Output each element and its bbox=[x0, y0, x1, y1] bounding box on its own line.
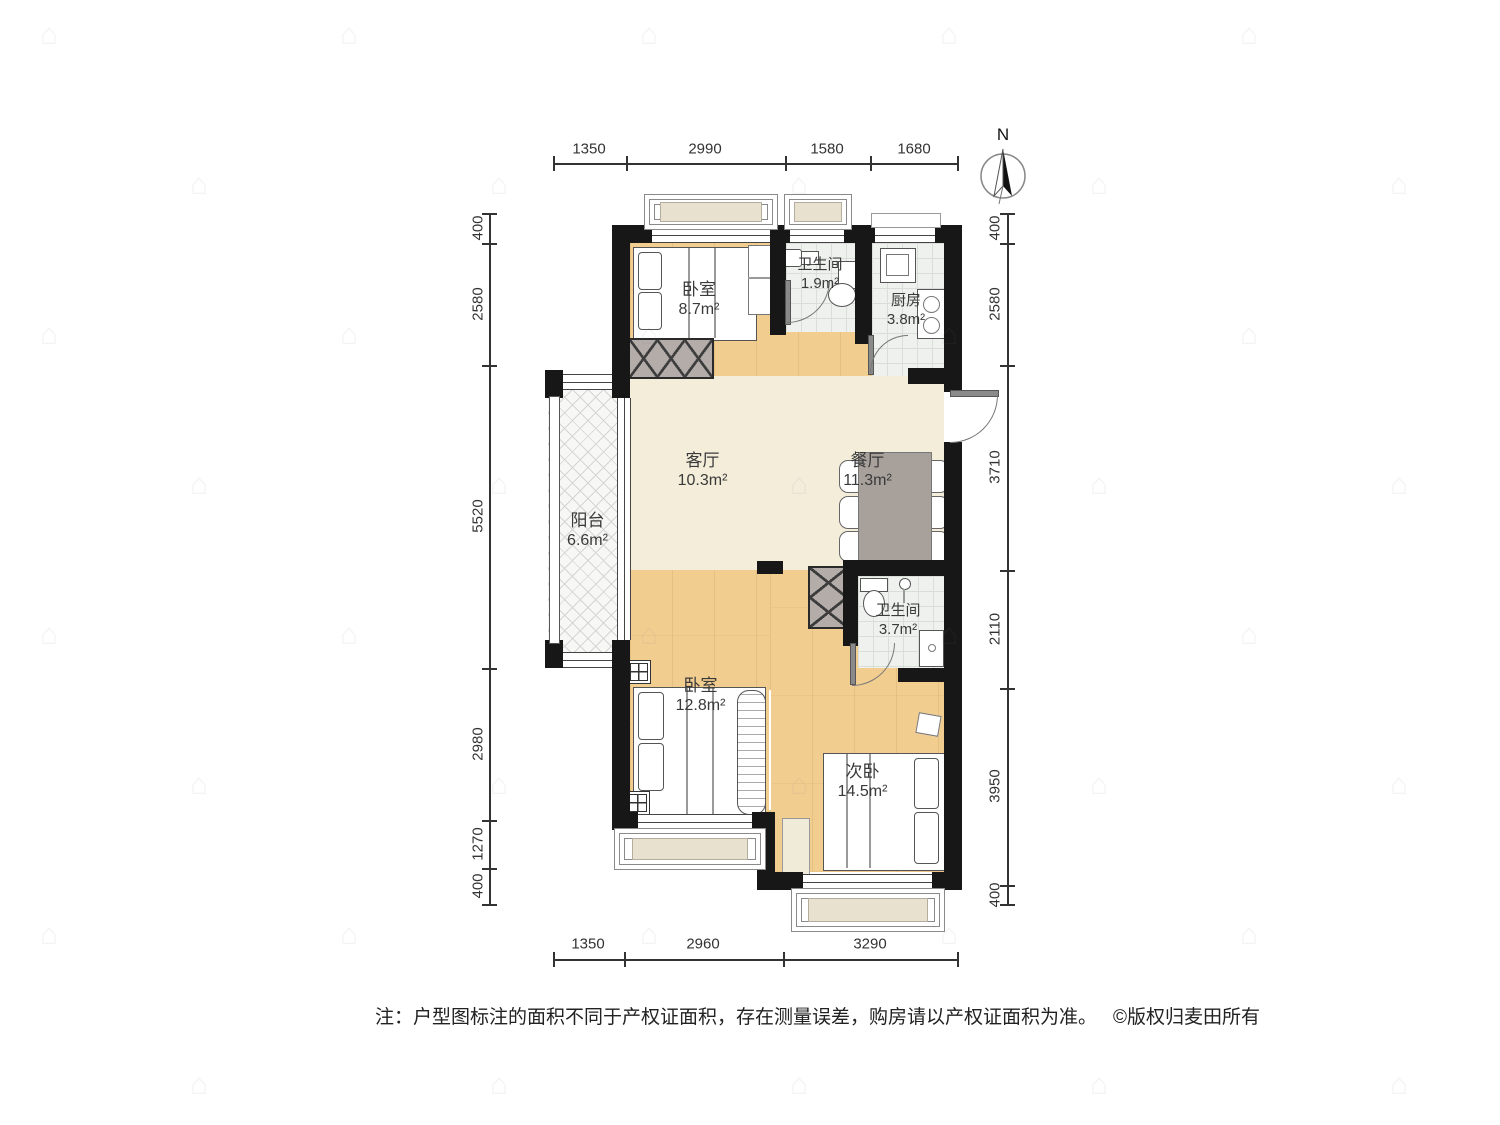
window bbox=[875, 227, 935, 243]
dimension-label: 2110 bbox=[987, 613, 1004, 645]
footnote: 注：户型图标注的面积不同于产权证面积，存在测量误差，购房请以产权证面积为准。 ©… bbox=[375, 1002, 1260, 1029]
dimension-line-left bbox=[489, 213, 491, 905]
room-name: 次卧 bbox=[815, 762, 910, 782]
compass: N bbox=[976, 124, 1034, 210]
wall bbox=[757, 561, 783, 574]
room-label-bedroom1: 卧室 8.7m² bbox=[654, 280, 744, 321]
column-symbol bbox=[627, 660, 651, 684]
dimension-tick bbox=[870, 156, 872, 171]
floorplan-canvas: 卧室 8.7m² 卫生间 1.9m² 厨房 3.8m² 客厅 10.3m² 餐厅… bbox=[0, 0, 1500, 1125]
wall bbox=[944, 225, 962, 392]
sink-drain bbox=[928, 644, 936, 652]
watermark-mark: ⌂ bbox=[790, 1068, 808, 1102]
room-name: 餐厅 bbox=[820, 451, 915, 471]
dimension-tick bbox=[482, 820, 497, 822]
watermark-mark: ⌂ bbox=[1390, 1068, 1408, 1102]
watermark-mark: ⌂ bbox=[1390, 168, 1408, 202]
bay-window-sill bbox=[660, 202, 762, 222]
room-name: 客厅 bbox=[655, 451, 750, 471]
watermark-mark: ⌂ bbox=[1090, 468, 1108, 502]
room-label-dining: 餐厅 11.3m² bbox=[820, 451, 915, 492]
desk-symbol bbox=[915, 712, 941, 737]
room-area: 14.5m² bbox=[815, 782, 910, 803]
dimension-label: 1350 bbox=[571, 936, 604, 953]
dimension-tick bbox=[482, 213, 497, 215]
watermark-mark: ⌂ bbox=[1240, 18, 1258, 52]
wall bbox=[843, 560, 944, 576]
room-area: 3.8m² bbox=[866, 310, 946, 330]
watermark-mark: ⌂ bbox=[1240, 918, 1258, 952]
room-area: 12.8m² bbox=[653, 696, 748, 717]
pillow bbox=[914, 758, 939, 809]
balcony-window bbox=[563, 374, 612, 390]
wall bbox=[898, 668, 944, 682]
pillow bbox=[914, 812, 939, 864]
dimension-tick bbox=[482, 904, 497, 906]
watermark-mark: ⌂ bbox=[40, 618, 58, 652]
room-area: 6.6m² bbox=[545, 531, 630, 552]
dimension-label: 400 bbox=[470, 873, 487, 898]
dimension-tick bbox=[1000, 365, 1015, 367]
room-area: 3.7m² bbox=[856, 620, 940, 640]
wall bbox=[612, 225, 630, 398]
wall bbox=[545, 640, 563, 668]
dimension-tick bbox=[783, 952, 785, 967]
watermark-mark: ⌂ bbox=[190, 768, 208, 802]
dimension-tick bbox=[626, 156, 628, 171]
dimension-label: 2580 bbox=[987, 287, 1004, 320]
dimension-label: 1680 bbox=[897, 141, 930, 158]
watermark-mark: ⌂ bbox=[340, 318, 358, 352]
bay-window-sill bbox=[794, 202, 842, 222]
room-name: 阳台 bbox=[545, 511, 630, 531]
kitchen-sink-basin bbox=[886, 254, 909, 276]
watermark-mark: ⌂ bbox=[490, 768, 508, 802]
watermark-mark: ⌂ bbox=[1090, 168, 1108, 202]
watermark-mark: ⌂ bbox=[340, 618, 358, 652]
room-area: 11.3m² bbox=[820, 471, 915, 492]
dimension-label: 400 bbox=[470, 215, 487, 240]
dimension-tick bbox=[553, 156, 555, 171]
dimension-label: 2980 bbox=[470, 727, 487, 760]
shower-hose bbox=[903, 589, 905, 603]
wall bbox=[612, 640, 630, 830]
room-name: 卫生间 bbox=[856, 602, 940, 620]
bay-window-sill bbox=[632, 838, 748, 860]
watermark-mark: ⌂ bbox=[490, 468, 508, 502]
dimension-label: 400 bbox=[987, 882, 1004, 907]
dimension-tick bbox=[957, 952, 959, 967]
watermark-mark: ⌂ bbox=[1090, 1068, 1108, 1102]
dimension-tick bbox=[482, 668, 497, 670]
room-label-kitchen: 厨房 3.8m² bbox=[866, 292, 946, 330]
watermark-mark: ⌂ bbox=[1390, 768, 1408, 802]
dimension-label: 1580 bbox=[810, 141, 843, 158]
dimension-label: 1270 bbox=[470, 827, 487, 860]
dimension-tick bbox=[624, 952, 626, 967]
room-label-balcony: 阳台 6.6m² bbox=[545, 511, 630, 552]
watermark-mark: ⌂ bbox=[40, 318, 58, 352]
dimension-label: 2580 bbox=[470, 287, 487, 320]
watermark-mark: ⌂ bbox=[190, 168, 208, 202]
dimension-tick bbox=[482, 868, 497, 870]
dimension-tick bbox=[1000, 570, 1015, 572]
closet-shelf-line bbox=[748, 277, 772, 279]
dimension-label: 3710 bbox=[987, 450, 1004, 483]
wall bbox=[545, 370, 563, 398]
room-name: 卧室 bbox=[654, 280, 744, 300]
watermark-mark: ⌂ bbox=[490, 1068, 508, 1102]
dimension-tick bbox=[1000, 213, 1015, 215]
dimension-label: 1350 bbox=[572, 141, 605, 158]
room-divider-line bbox=[769, 690, 771, 810]
watermark-mark: ⌂ bbox=[940, 18, 958, 52]
watermark-mark: ⌂ bbox=[1090, 768, 1108, 802]
watermark-mark: ⌂ bbox=[1390, 468, 1408, 502]
dimension-line-right bbox=[1007, 213, 1009, 905]
dimension-line-bottom bbox=[553, 959, 958, 961]
dimension-tick bbox=[1000, 688, 1015, 690]
room-label-bedroom3: 次卧 14.5m² bbox=[815, 762, 910, 803]
watermark-mark: ⌂ bbox=[640, 18, 658, 52]
wall bbox=[944, 442, 962, 890]
shower-head bbox=[899, 578, 911, 590]
dimension-label: 3950 bbox=[987, 769, 1004, 802]
watermark-mark: ⌂ bbox=[490, 168, 508, 202]
dimension-tick bbox=[553, 952, 555, 967]
pillow bbox=[638, 743, 664, 791]
watermark-mark: ⌂ bbox=[1240, 318, 1258, 352]
room-name: 卫生间 bbox=[778, 256, 862, 274]
room-area: 10.3m² bbox=[655, 471, 750, 492]
dimension-tick bbox=[785, 156, 787, 171]
watermark-mark: ⌂ bbox=[190, 1068, 208, 1102]
copyright-text: ©版权归麦田所有 bbox=[1113, 1002, 1260, 1029]
wardrobe-hatched bbox=[628, 338, 714, 379]
dimension-label: 2960 bbox=[686, 936, 719, 953]
dimension-tick bbox=[1000, 243, 1015, 245]
room-area: 8.7m² bbox=[654, 300, 744, 321]
watermark-mark: ⌂ bbox=[340, 918, 358, 952]
watermark-mark: ⌂ bbox=[40, 918, 58, 952]
room-area: 1.9m² bbox=[778, 274, 862, 294]
dimension-tick bbox=[957, 156, 959, 171]
bay-window-sill bbox=[808, 898, 928, 922]
dimension-line-top bbox=[553, 163, 958, 165]
watermark-mark: ⌂ bbox=[1240, 618, 1258, 652]
dimension-label: 2990 bbox=[688, 141, 721, 158]
dimension-tick bbox=[482, 243, 497, 245]
room-label-bath2: 卫生间 3.7m² bbox=[856, 602, 940, 640]
watermark-mark: ⌂ bbox=[190, 468, 208, 502]
room-name: 卧室 bbox=[653, 676, 748, 696]
room-label-bath1: 卫生间 1.9m² bbox=[778, 256, 862, 294]
entry-door-swing bbox=[950, 395, 998, 443]
footnote-text: 注：户型图标注的面积不同于产权证面积，存在测量误差，购房请以产权证面积为准。 bbox=[375, 1002, 1097, 1029]
dimension-label: 3290 bbox=[853, 936, 886, 953]
watermark-mark: ⌂ bbox=[40, 18, 58, 52]
dimension-label: 400 bbox=[987, 215, 1004, 240]
watermark-mark: ⌂ bbox=[640, 918, 658, 952]
dimension-tick bbox=[482, 365, 497, 367]
window-outer-frame bbox=[871, 213, 941, 228]
compass-north-label: N bbox=[997, 125, 1009, 144]
room-name: 厨房 bbox=[866, 292, 946, 310]
room-label-living: 客厅 10.3m² bbox=[655, 451, 750, 492]
watermark-mark: ⌂ bbox=[340, 18, 358, 52]
balcony-window bbox=[563, 652, 612, 668]
dimension-label: 5520 bbox=[470, 499, 487, 532]
room-label-bedroom2: 卧室 12.8m² bbox=[653, 676, 748, 717]
wall bbox=[908, 368, 944, 384]
